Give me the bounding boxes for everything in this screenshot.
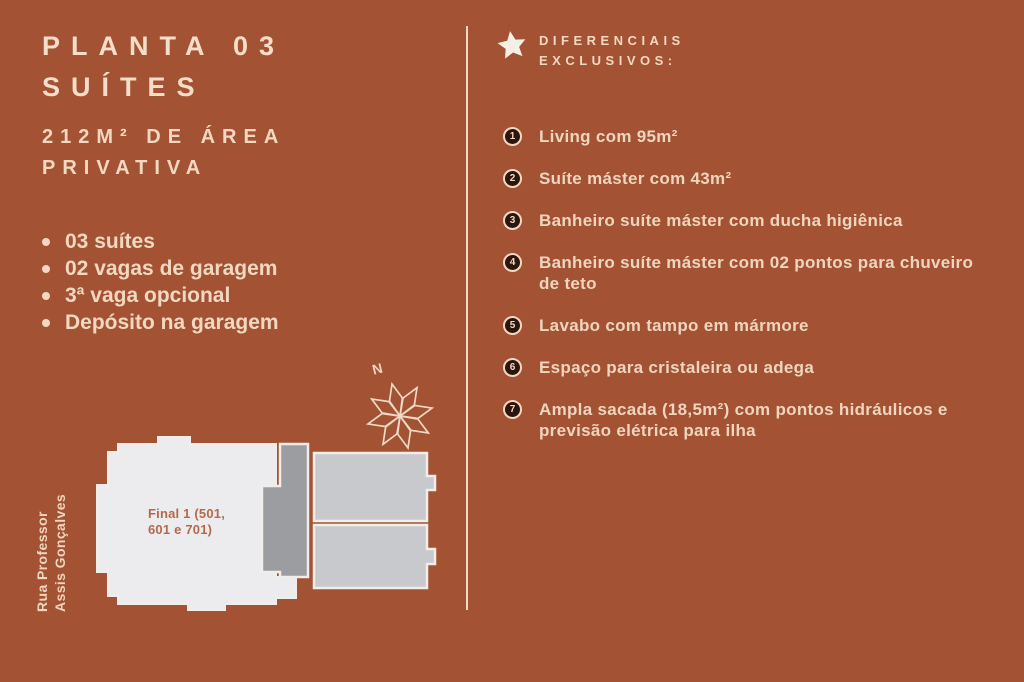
item-text: Lavabo com tampo em mármore bbox=[539, 315, 809, 336]
unit-label: Final 1 (501, 601 e 701) bbox=[148, 506, 258, 538]
item-number-badge: 2 bbox=[503, 169, 522, 188]
street-name-line1: Rua Professor bbox=[33, 430, 51, 612]
list-item: 1 Living com 95m² bbox=[503, 126, 975, 147]
bullet-text: 3ª vaga opcional bbox=[65, 284, 230, 308]
item-text: Suíte máster com 43m² bbox=[539, 168, 731, 189]
item-number-badge: 1 bbox=[503, 127, 522, 146]
item-text: Ampla sacada (18,5m²) com pontos hidrául… bbox=[539, 399, 975, 441]
item-number-badge: 4 bbox=[503, 253, 522, 272]
item-number-badge: 5 bbox=[503, 316, 522, 335]
bullet-item: Depósito na garagem bbox=[42, 309, 279, 336]
bullet-item: 3ª vaga opcional bbox=[42, 282, 279, 309]
bullet-dot-icon bbox=[42, 238, 50, 246]
vertical-divider bbox=[466, 26, 468, 610]
floor-plan-neighbor-top bbox=[314, 453, 435, 521]
star-icon bbox=[497, 30, 527, 60]
list-item: 5 Lavabo com tampo em mármore bbox=[503, 315, 975, 336]
item-text: Banheiro suíte máster com ducha higiênic… bbox=[539, 210, 903, 231]
list-item: 7 Ampla sacada (18,5m²) com pontos hidrá… bbox=[503, 399, 975, 441]
differentials-header: DIFERENCIAIS EXCLUSIVOS: bbox=[497, 30, 685, 71]
item-text: Espaço para cristaleira ou adega bbox=[539, 357, 814, 378]
floor-plan-drawing bbox=[88, 430, 448, 614]
differentials-list: 1 Living com 95m² 2 Suíte máster com 43m… bbox=[503, 126, 975, 462]
list-item: 2 Suíte máster com 43m² bbox=[503, 168, 975, 189]
item-number-badge: 7 bbox=[503, 400, 522, 419]
differentials-title-line1: DIFERENCIAIS bbox=[539, 31, 685, 51]
item-number-badge: 6 bbox=[503, 358, 522, 377]
bullet-dot-icon bbox=[42, 319, 50, 327]
list-item: 6 Espaço para cristaleira ou adega bbox=[503, 357, 975, 378]
bullet-text: 02 vagas de garagem bbox=[65, 257, 277, 281]
compass-north-label: N bbox=[370, 360, 384, 378]
bullet-dot-icon bbox=[42, 265, 50, 273]
differentials-title: DIFERENCIAIS EXCLUSIVOS: bbox=[539, 31, 685, 71]
floor-plan: Final 1 (501, 601 e 701) bbox=[88, 430, 448, 614]
bullet-text: 03 suítes bbox=[65, 230, 155, 254]
differentials-title-line2: EXCLUSIVOS: bbox=[539, 51, 685, 71]
area-subtitle-line1: 212M² DE ÁREA bbox=[42, 122, 285, 153]
bullet-text: Depósito na garagem bbox=[65, 311, 279, 335]
item-number-badge: 3 bbox=[503, 211, 522, 230]
page-title-line2: SUÍTES bbox=[42, 67, 285, 108]
street-name-label: Rua Professor Assis Gonçalves bbox=[33, 430, 69, 612]
bullet-item: 02 vagas de garagem bbox=[42, 255, 279, 282]
feature-bullet-list: 03 suítes 02 vagas de garagem 3ª vaga op… bbox=[42, 228, 279, 336]
list-item: 3 Banheiro suíte máster com ducha higiên… bbox=[503, 210, 975, 231]
page-title-line1: PLANTA 03 bbox=[42, 26, 285, 67]
floor-plan-neighbor-bottom bbox=[314, 525, 435, 588]
item-text: Living com 95m² bbox=[539, 126, 678, 147]
area-subtitle: 212M² DE ÁREA PRIVATIVA bbox=[42, 122, 285, 184]
bullet-dot-icon bbox=[42, 292, 50, 300]
list-item: 4 Banheiro suíte máster com 02 pontos pa… bbox=[503, 252, 975, 294]
bullet-item: 03 suítes bbox=[42, 228, 279, 255]
area-subtitle-line2: PRIVATIVA bbox=[42, 153, 285, 184]
street-name-line2: Assis Gonçalves bbox=[51, 430, 69, 612]
page-title: PLANTA 03 SUÍTES bbox=[42, 26, 285, 108]
item-text: Banheiro suíte máster com 02 pontos para… bbox=[539, 252, 975, 294]
